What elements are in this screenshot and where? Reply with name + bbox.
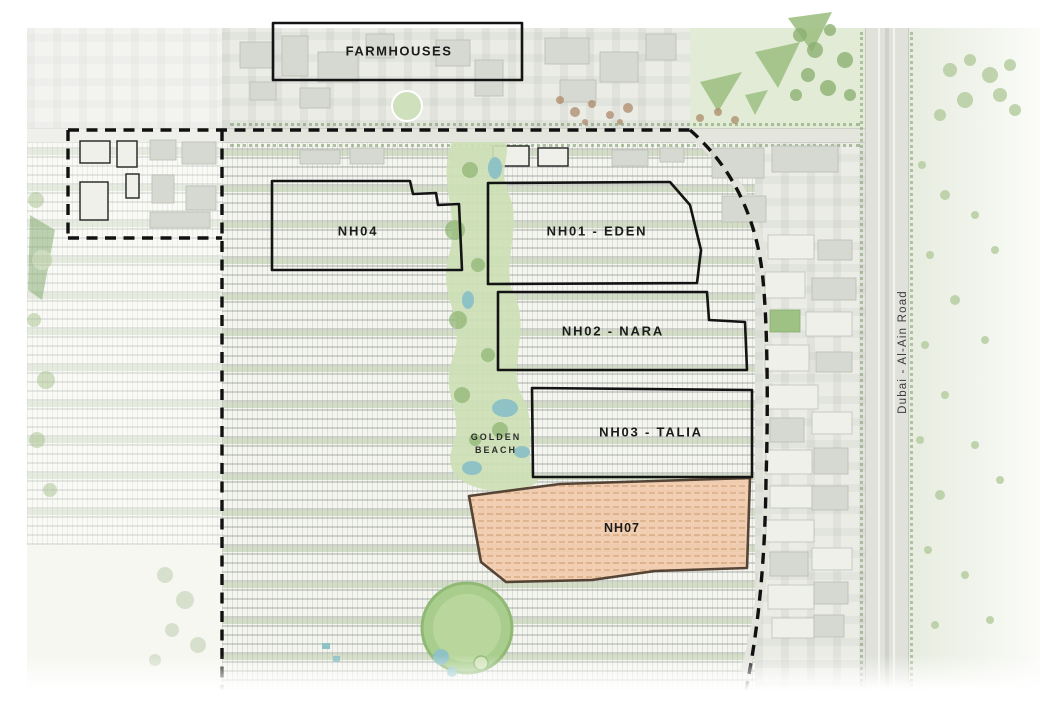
roundabout xyxy=(392,91,422,121)
bottom-fade xyxy=(27,655,1040,691)
label-golden-beach-line2: BEACH xyxy=(475,445,517,455)
label-dubai-al-ain-road: Dubai - Al-Ain Road xyxy=(897,290,909,414)
school-block-buildings xyxy=(80,140,216,228)
masterplan-map: FARMHOUSES NH04 NH01 - EDEN NH02 - NARA … xyxy=(0,0,1040,721)
desert-trees xyxy=(916,54,1021,629)
west-edge-trees xyxy=(27,192,206,666)
label-nh03-talia: NH03 - TALIA xyxy=(599,425,703,440)
label-nh01-eden: NH01 - EDEN xyxy=(547,224,648,239)
label-nh02-nara: NH02 - NARA xyxy=(562,324,664,339)
label-golden-beach-line1: GOLDEN xyxy=(471,432,522,442)
label-nh04: NH04 xyxy=(338,224,378,239)
label-nh07: NH07 xyxy=(604,521,640,535)
map-geometry-layer xyxy=(0,0,1040,721)
label-farmhouses: FARMHOUSES xyxy=(346,44,453,59)
tree-cluster-north xyxy=(790,24,856,101)
